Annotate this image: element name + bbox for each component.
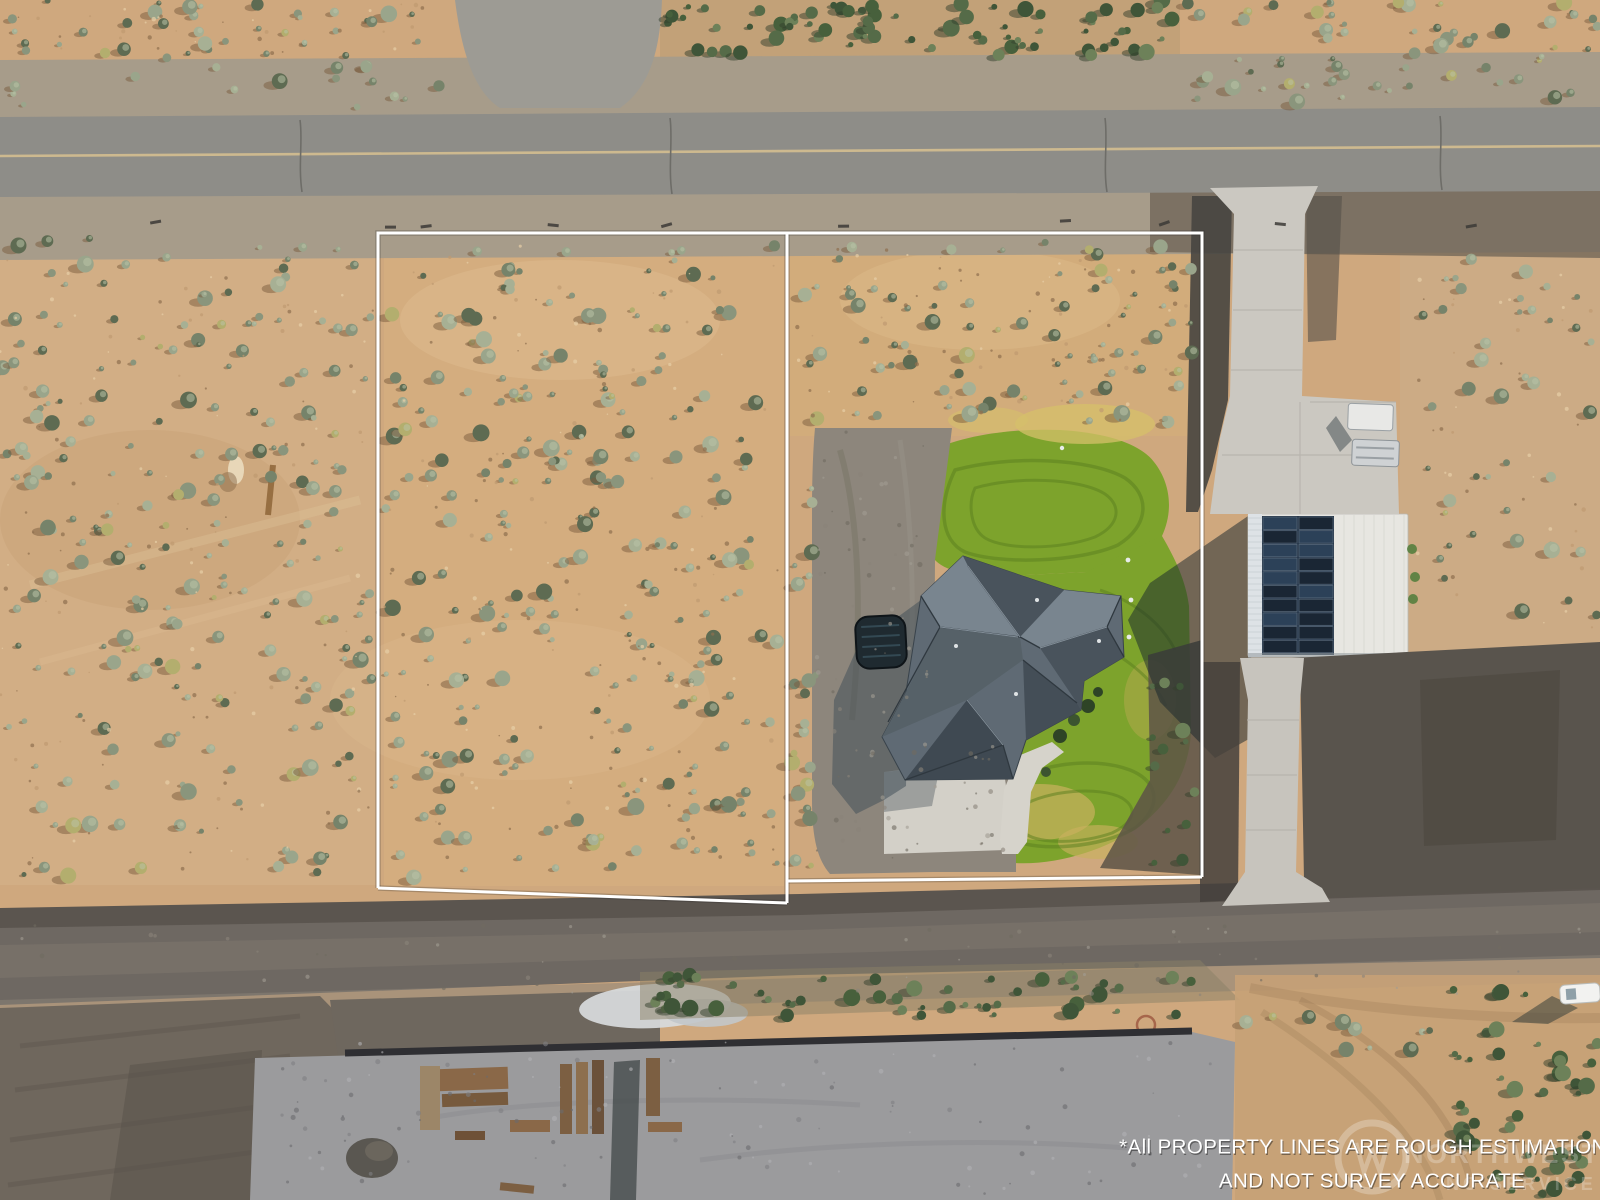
aerial-photo: NORTHWEST NO SERVICE *All PROPERTY LINES… <box>0 0 1600 1200</box>
gravel-pad-top <box>455 0 662 108</box>
trampoline <box>855 615 908 670</box>
disclaimer-line2: AND NOT SURVEY ACCURATE <box>1219 1170 1525 1193</box>
disclaimer-line1: *All PROPERTY LINES ARE ROUGH ESTIMATION… <box>1119 1136 1600 1159</box>
aerial-photo-canvas: NORTHWEST NO SERVICE *All PROPERTY LINES… <box>0 0 1600 1200</box>
gravel-building-pad <box>250 1032 1235 1200</box>
